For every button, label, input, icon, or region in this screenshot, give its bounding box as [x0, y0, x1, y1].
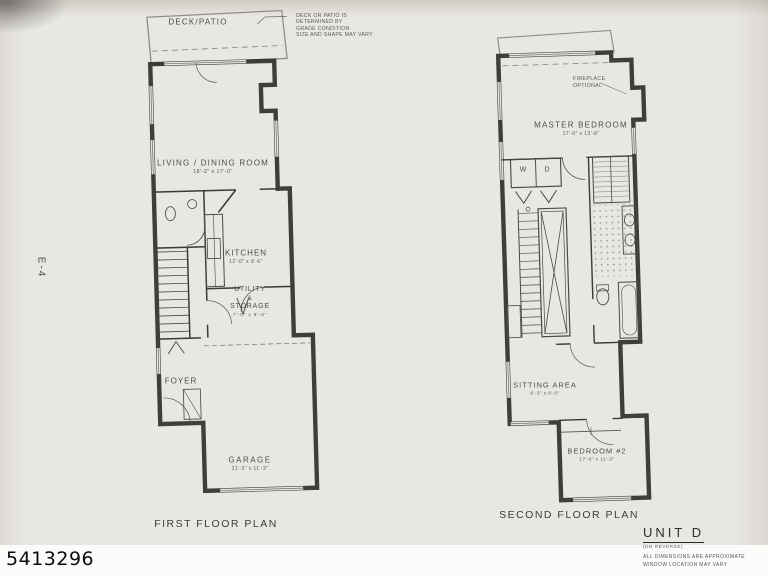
bedroom-2-dims: 17'-6" x 11'-3"	[579, 458, 614, 463]
floor-plan-drawing	[0, 0, 768, 577]
garage-dims: 21'-3" x 11'-3"	[232, 466, 268, 472]
dryer-label: D	[544, 167, 549, 174]
master-bedroom-dims: 17'-0" x 13'-8"	[563, 131, 600, 137]
bedroom2-door-arc	[587, 419, 614, 446]
deck-door-arc	[196, 62, 217, 83]
kitchen-label: KITCHEN	[225, 249, 267, 258]
second-floor-deck-outline	[497, 30, 614, 66]
title-block: UNIT D (DD REVERSE) ALL DIMENSIONS ARE A…	[643, 524, 745, 569]
unit-subtitle: (DD REVERSE)	[643, 544, 745, 549]
garage-label: GARAGE	[228, 456, 271, 465]
washer-label: W	[520, 167, 527, 174]
utility-line: &	[230, 294, 270, 303]
utility-dims: 7'-0" x 8'-6"	[230, 312, 270, 321]
fireplace-note: FIREPLACE OPTIONAL	[573, 76, 605, 90]
utility-storage-label: UTILITY & STORAGE 7'-0" x 8'-6"	[230, 286, 270, 320]
kitchen-dims: 12'-0" x 9'-6"	[229, 259, 263, 265]
stairwell-x	[541, 211, 567, 334]
foyer-details	[154, 62, 226, 424]
garage-interior-dashed-line	[204, 343, 310, 346]
second-floor-plan	[497, 29, 656, 501]
fireplace-note-line: OPTIONAL	[573, 83, 605, 90]
sitting-area-label: SITTING AREA	[513, 381, 577, 390]
unit-title: UNIT D	[643, 525, 704, 543]
kitchen-counter	[204, 214, 224, 286]
photo-id: 5413296	[6, 548, 94, 570]
stairs-second-floor	[518, 206, 570, 337]
scanned-floor-plan-page: DECK/PATIO DECK OR PATIO IS DETERMINED B…	[0, 0, 768, 577]
hall-closets-doors	[507, 302, 621, 447]
note-line: WINDOW LOCATION MAY VARY	[643, 561, 745, 569]
dimension-notes: ALL DIMENSIONS ARE APPROXIMATE WINDOW LO…	[643, 553, 745, 569]
washer-dryer-closet	[510, 157, 585, 203]
linen-closet	[592, 156, 629, 203]
tile-floor	[592, 204, 636, 277]
deck-note-line: SIZE AND SHAPE MAY VARY	[296, 32, 373, 38]
first-floor-windows	[150, 60, 303, 492]
deck-patio-label: DECK/PATIO	[168, 18, 227, 27]
fireplace-note-line: FIREPLACE	[573, 76, 605, 83]
master-bedroom-label: MASTER BEDROOM	[534, 121, 628, 130]
bedroom-2-label: BEDROOM #2	[567, 447, 626, 456]
note-line: ALL DIMENSIONS ARE APPROXIMATE	[643, 553, 745, 561]
bathroom	[592, 204, 640, 339]
sitting-door-arc	[570, 343, 595, 368]
stairs-first-floor	[157, 251, 189, 332]
living-dining-room-label: LIVING / DINING ROOM	[157, 159, 269, 168]
sitting-area-dims: 8'-3" x 9'-0"	[530, 392, 559, 397]
foyer-label: FOYER	[165, 377, 198, 386]
sheet-code: E-4	[35, 257, 46, 279]
hall-door-arc	[562, 157, 585, 180]
entry-door-arc	[164, 397, 191, 424]
stairs-up-arrow-icon	[168, 341, 184, 353]
second-floor-exterior-walls	[498, 51, 656, 501]
powder-room-fixtures	[165, 199, 205, 246]
deck-note: DECK OR PATIO IS DETERMINED BY GRADE CON…	[296, 13, 373, 39]
second-floor-caption: SECOND FLOOR PLAN	[499, 509, 639, 521]
first-floor-caption: FIRST FLOOR PLAN	[154, 518, 278, 530]
utility-line: STORAGE	[230, 303, 270, 312]
utility-line: UTILITY	[230, 286, 270, 295]
living-dining-room-dims: 18'-3" x 17'-0"	[193, 169, 232, 175]
